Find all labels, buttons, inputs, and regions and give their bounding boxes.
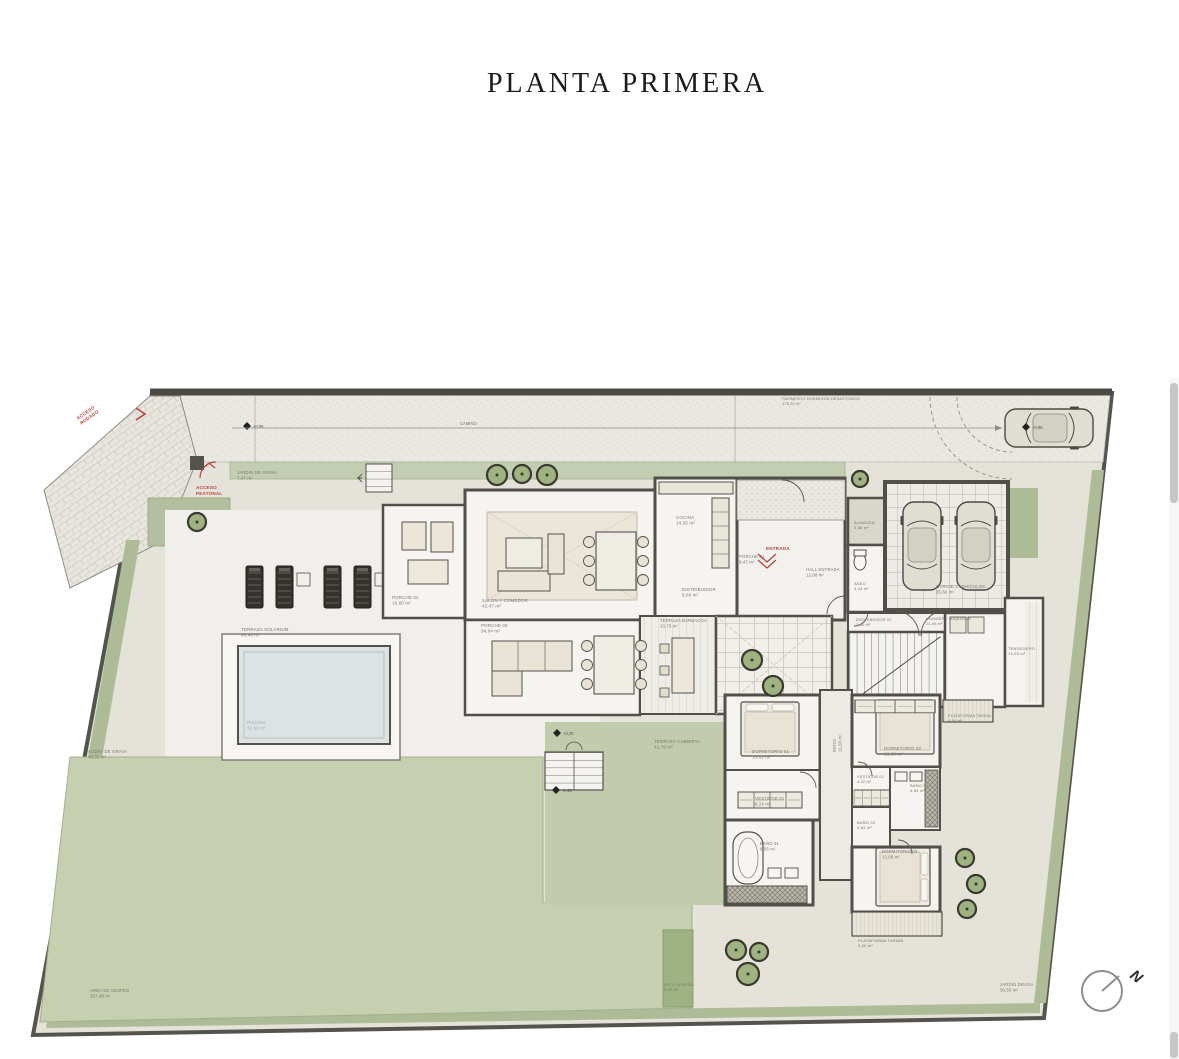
kitchen-counter xyxy=(659,482,733,494)
level-marker: +0,95 xyxy=(243,422,264,430)
north-letter: N xyxy=(1127,967,1147,988)
label-camino: CAMINO xyxy=(460,421,477,426)
tree xyxy=(750,943,768,961)
floor-plan-canvas: PLANTA PRIMERA xyxy=(0,0,1179,1059)
gate-pillar xyxy=(190,456,204,470)
tree xyxy=(513,465,531,483)
level-marker: +0,00 xyxy=(553,729,574,737)
scrollbar-thumb[interactable] xyxy=(1170,383,1178,503)
tree xyxy=(958,900,976,918)
tree xyxy=(188,513,206,531)
svg-text:+0,95: +0,95 xyxy=(1032,425,1043,430)
porch-entrance xyxy=(737,480,845,520)
label-piscina: PISCINA32,00 m² xyxy=(247,720,266,731)
hedge-seto xyxy=(663,930,693,1007)
car-icon xyxy=(1005,407,1093,450)
sofa xyxy=(498,571,550,591)
patio-strip xyxy=(820,690,852,880)
label-entrada: ENTRADA xyxy=(766,546,790,551)
label-cocina: COCINA14,05 m² xyxy=(676,515,695,526)
garage-car-2 xyxy=(955,502,998,590)
tree xyxy=(763,676,783,696)
scrollbar-thumb-bottom[interactable] xyxy=(1170,1032,1178,1058)
kitchen-island xyxy=(712,498,729,568)
svg-text:-0,45: -0,45 xyxy=(562,788,572,793)
tree xyxy=(956,849,974,867)
tree xyxy=(852,471,868,487)
garage-car-1 xyxy=(901,502,944,590)
tree xyxy=(487,465,507,485)
dining-table xyxy=(584,532,649,590)
covered-terrace xyxy=(545,722,725,905)
north-compass-icon: N xyxy=(1082,967,1146,1011)
pool-area xyxy=(222,634,400,760)
tree xyxy=(742,650,762,670)
tree xyxy=(737,963,759,985)
coffee-table xyxy=(506,538,542,568)
tree xyxy=(537,465,557,485)
level-marker: +0,95 xyxy=(1022,423,1043,431)
svg-text:+0,00: +0,00 xyxy=(563,731,574,736)
bathtub xyxy=(733,832,763,884)
scrollbar xyxy=(1169,378,1179,1059)
deck-tarima-2 xyxy=(852,912,942,936)
label-acceso-rodado: ACCESORODADO xyxy=(76,404,100,425)
page-title: PLANTA PRIMERA xyxy=(487,68,767,99)
tree xyxy=(726,940,746,960)
deck-hatch xyxy=(727,886,807,903)
bed-dormitorio-01 xyxy=(741,702,799,756)
wardrobe-vestidor-02 xyxy=(854,790,889,806)
floor-plan-page: PLANTA PRIMERA xyxy=(0,0,1179,1059)
level-marker: -0,45 xyxy=(552,786,572,794)
driveway xyxy=(180,395,1110,462)
tree xyxy=(967,875,985,893)
